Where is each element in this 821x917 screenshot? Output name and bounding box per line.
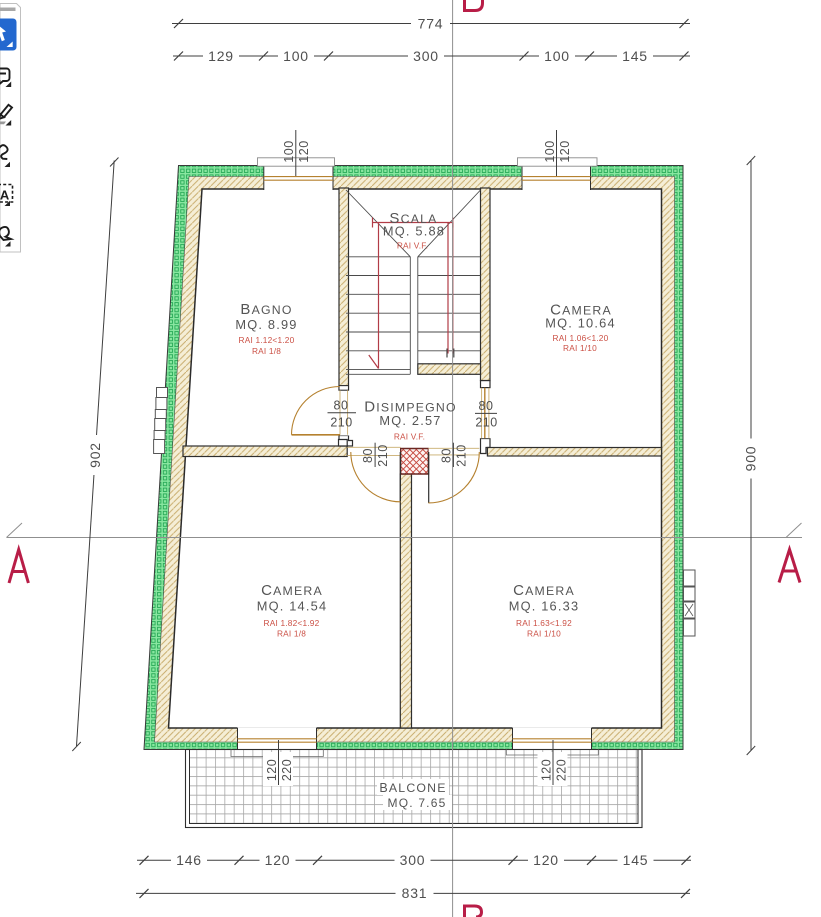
svg-text:120: 120 <box>297 140 311 162</box>
svg-text:100: 100 <box>282 140 296 162</box>
svg-text:RAI 1/8: RAI 1/8 <box>252 346 281 356</box>
svg-text:RAI 1.06<1.20: RAI 1.06<1.20 <box>553 333 609 343</box>
svg-text:80: 80 <box>440 448 454 463</box>
svg-text:220: 220 <box>280 759 294 781</box>
svg-text:120: 120 <box>539 759 553 781</box>
svg-text:774: 774 <box>418 15 444 31</box>
svg-text:900: 900 <box>743 446 759 472</box>
svg-text:RAI 1/10: RAI 1/10 <box>527 629 561 639</box>
svg-text:MQ. 2.57: MQ. 2.57 <box>379 413 441 428</box>
svg-text:145: 145 <box>622 48 648 64</box>
svg-text:100: 100 <box>543 140 557 162</box>
svg-text:80: 80 <box>361 448 375 463</box>
svg-text:RAI 1.82<1.92: RAI 1.82<1.92 <box>264 618 320 628</box>
svg-text:100: 100 <box>544 48 570 64</box>
svg-text:145: 145 <box>623 852 649 868</box>
svg-text:120: 120 <box>265 852 291 868</box>
svg-text:RAI V.F.: RAI V.F. <box>397 241 428 251</box>
svg-text:129: 129 <box>208 48 234 64</box>
svg-text:120: 120 <box>265 759 279 781</box>
svg-text:RAI 1.63<1.92: RAI 1.63<1.92 <box>516 618 572 628</box>
svg-text:902: 902 <box>87 442 103 468</box>
svg-text:300: 300 <box>413 48 439 64</box>
svg-text:MQ. 7.65: MQ. 7.65 <box>388 796 447 810</box>
svg-text:MQ. 8.99: MQ. 8.99 <box>235 317 297 332</box>
svg-text:RAI 1/10: RAI 1/10 <box>563 343 597 353</box>
svg-text:RAI 1.12<1.20: RAI 1.12<1.20 <box>239 335 295 345</box>
svg-text:120: 120 <box>533 852 559 868</box>
svg-text:210: 210 <box>455 444 469 466</box>
svg-text:MQ. 16.33: MQ. 16.33 <box>509 599 580 614</box>
svg-text:300: 300 <box>400 852 426 868</box>
svg-text:100: 100 <box>283 48 309 64</box>
svg-text:MQ. 14.54: MQ. 14.54 <box>257 599 328 614</box>
svg-text:80: 80 <box>479 399 494 413</box>
svg-text:120: 120 <box>558 140 572 162</box>
svg-text:146: 146 <box>176 852 202 868</box>
svg-text:210: 210 <box>376 444 390 466</box>
svg-text:831: 831 <box>402 885 428 901</box>
svg-text:BAGNO: BAGNO <box>240 301 292 318</box>
svg-text:CAMERA: CAMERA <box>261 582 323 599</box>
svg-text:RAI V.F.: RAI V.F. <box>394 432 425 442</box>
svg-text:MQ. 10.64: MQ. 10.64 <box>545 316 616 331</box>
svg-text:BALCONE: BALCONE <box>379 781 446 795</box>
svg-text:80: 80 <box>334 399 349 413</box>
svg-text:RAI 1/8: RAI 1/8 <box>277 629 306 639</box>
svg-text:CAMERA: CAMERA <box>513 582 575 599</box>
svg-text:210: 210 <box>330 416 352 430</box>
svg-text:210: 210 <box>475 416 497 430</box>
svg-text:220: 220 <box>554 759 568 781</box>
svg-text:MQ. 5.88: MQ. 5.88 <box>383 224 445 239</box>
svg-text:A: A <box>0 188 10 203</box>
